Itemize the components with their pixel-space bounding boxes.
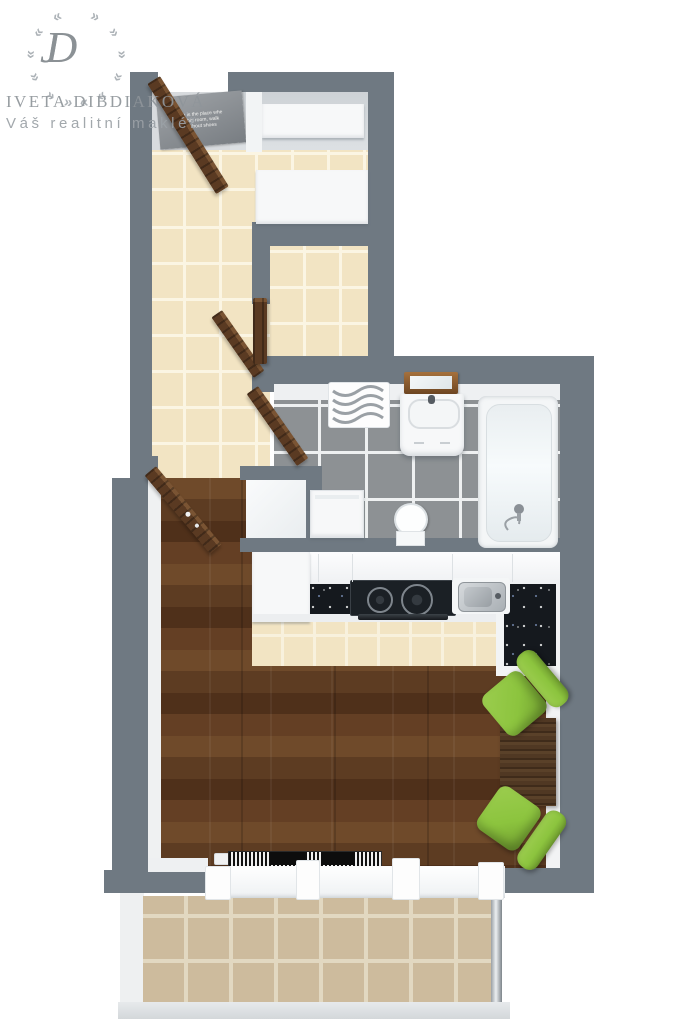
laurel-leaf: »	[113, 50, 131, 60]
laurel-leaf: «	[21, 50, 39, 60]
kitchen-corner-cabinet	[252, 552, 310, 622]
towel-radiator	[328, 382, 390, 428]
vanity-drawer-handle	[414, 442, 424, 444]
sink-bowl	[464, 587, 492, 607]
balcony-window-band	[205, 866, 505, 898]
agent-tagline: Váš realitní makléř	[6, 115, 199, 132]
vanity-mirror-shelf	[404, 372, 458, 394]
agency-watermark: » » » » » » « « « « « « JD IVETA DIBDIAK…	[0, 0, 280, 140]
washing-machine	[310, 490, 364, 538]
cabinet-divider	[512, 554, 513, 582]
cooktop	[350, 580, 456, 616]
entry-shoe-cabinet	[256, 170, 368, 224]
bottom-wall-left	[104, 870, 208, 893]
washing-machine-panel	[315, 495, 359, 499]
cabinet-divider	[318, 554, 319, 582]
cooktop-burner-small	[367, 587, 393, 613]
cabinet-divider	[352, 554, 353, 582]
right-column-west-edge	[496, 614, 504, 668]
cabinet-divider	[452, 554, 453, 582]
storage-north-wall	[252, 222, 394, 246]
laurel-leaf: »	[105, 24, 124, 41]
balcony-railing-post	[491, 888, 502, 1004]
towel-radiator-coils	[329, 383, 387, 425]
bathtub	[478, 396, 558, 548]
shower-handset	[500, 500, 530, 536]
window-frame-post	[205, 866, 231, 900]
sink-faucet	[428, 395, 435, 404]
bottom-wall-right	[505, 868, 594, 893]
bathroom-vanity-sink	[400, 394, 464, 456]
floorplan-render: om is the place whe e big room, walk wit…	[0, 0, 696, 1026]
agent-name: IVETA DIBDIAKOVÁ	[6, 92, 206, 112]
toilet-tank	[396, 531, 425, 546]
laurel-leaf: »	[88, 7, 103, 26]
vanity-drawer-handle	[440, 442, 450, 444]
door-handle	[194, 523, 200, 529]
balcony-left-edge	[120, 893, 144, 1013]
window-frame-post	[392, 858, 420, 900]
mirror-glass	[410, 376, 452, 389]
balcony-bottom-ledge	[118, 1002, 510, 1019]
shower-niche-floor	[246, 478, 306, 538]
balcony-floor-tiles	[143, 896, 497, 1004]
window-frame-post	[478, 862, 504, 900]
entry-east-wall	[368, 72, 394, 362]
radiator-segment	[321, 852, 355, 865]
cooktop-burner-large	[401, 584, 433, 616]
laurel-leaf: »	[109, 70, 128, 85]
bottom-left-baseboard	[148, 858, 208, 872]
sink-basin	[408, 399, 460, 429]
door-handle	[184, 511, 191, 518]
kitchen-sink	[458, 582, 506, 612]
logo-monogram: JD	[40, 22, 63, 73]
kitchen-floor-strip-tiles	[252, 622, 498, 666]
left-wall-lower	[112, 478, 148, 893]
kitchen-faucet	[495, 593, 501, 599]
oven-handle	[358, 614, 448, 620]
storage-west-wall	[252, 246, 270, 304]
storage-door-leaf-b	[253, 298, 267, 364]
window-handle	[296, 860, 320, 900]
left-baseboard	[148, 478, 161, 868]
storage-floor-tiles	[270, 246, 368, 358]
